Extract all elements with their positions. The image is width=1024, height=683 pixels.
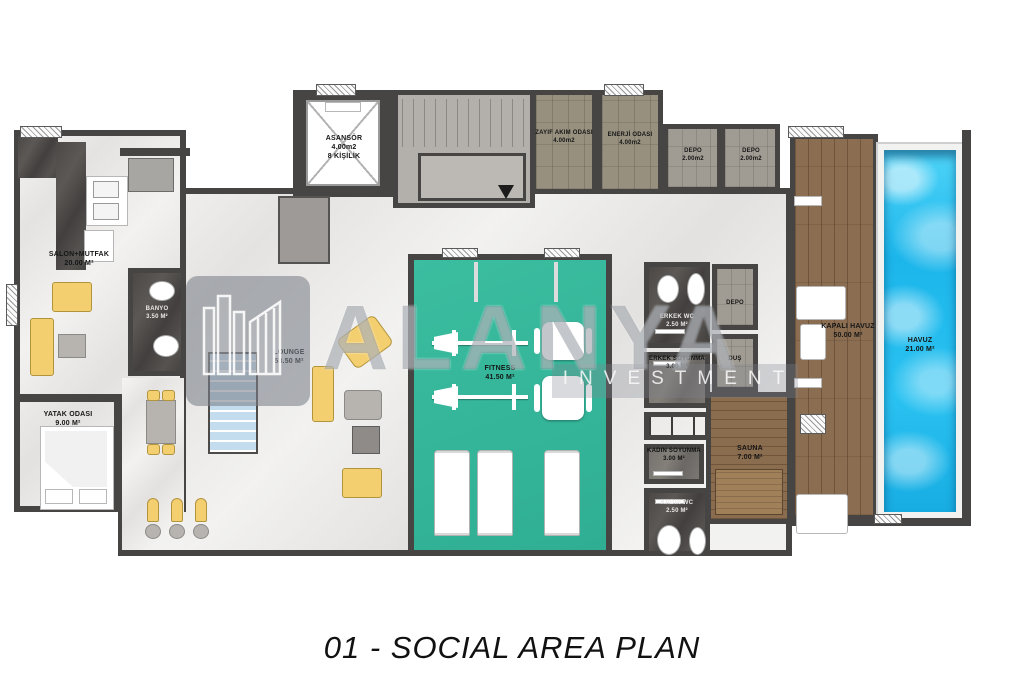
room-area: 2.50 M² [644,508,710,516]
label-havuz: HAVUZ 21.00 M² [882,336,958,354]
dining-table [146,400,176,444]
label-kapali-havuz: KAPALI HAVUZ 50.00 M² [818,322,878,340]
plan-title: 01 - SOCIAL AREA PLAN [0,630,1024,666]
coffee-table [58,334,86,358]
stair-steps [402,99,526,147]
room-name: BANYO [130,306,184,314]
column-hatch [604,84,644,96]
deck-bench [794,196,822,206]
column-hatch [20,126,62,138]
room-area: 4.00m2 [599,140,661,148]
room-name: DEPO [665,148,721,156]
room-area: 2.00m2 [723,156,779,164]
room-area: 50.00 M² [818,331,878,340]
dining-chair [147,444,160,455]
kitchen-wall-block [18,136,58,178]
label-depo-1: DEPO 2.00m2 [665,148,721,164]
deck-mat [800,414,826,434]
alanya-logo [186,276,310,406]
apartment-step-wall [120,148,190,156]
room-capacity: 8 KİŞİLİK [306,152,382,161]
room-name: KADIN SOYUNMA [644,448,704,456]
dining-chair [147,390,160,401]
watermark-sub: INVESTMENT [560,368,798,390]
room-name: ZAYIF AKIM ODASI [533,130,595,138]
label-kadin-soyunma: KADIN SOYUNMA 3.00 M² [644,448,704,464]
room-area: 3.50 M² [130,314,184,322]
label-salon-mutfak: SALON+MUTFAK 20.00 M² [34,250,124,268]
room-name: SAUNA [712,444,788,453]
label-kadin-wc: KADIN WC 2.50 M² [644,500,710,516]
outdoor-pool-water [884,150,956,512]
toilet-icon [689,527,706,555]
room-banyo [128,268,186,376]
room-area: 20.00 M² [34,259,124,268]
floor-plan-page: SALON+MUTFAK 20.00 M² BANYO 3.50 M² YATA… [0,0,1024,683]
label-yatak-odasi: YATAK ODASI 9.00 M² [28,410,108,428]
pillow [79,489,107,504]
room-name: YATAK ODASI [28,410,108,419]
sink-icon [93,203,119,220]
bedroom-divider-wall [14,394,120,402]
room-name: ASANSÖR [306,134,382,143]
toilet-icon [153,335,179,357]
room-name: KADIN WC [644,500,710,508]
sofa [52,282,92,312]
sink-icon [93,181,119,198]
room-name: ENERJİ ODASI [599,132,661,140]
bed-blanket [45,431,107,487]
column-hatch [788,126,844,138]
dining-chair [162,444,175,455]
room-name: SALON+MUTFAK [34,250,124,259]
room-area: 21.00 M² [882,345,958,354]
outer-wall-right [962,130,971,522]
pedicure-chair [144,498,162,540]
room-area: 4.00m2 [306,143,382,152]
toilet-icon [657,525,681,555]
kitchen-counter [86,176,128,226]
bedroom-right-wall [114,394,122,512]
column-hatch [316,84,356,96]
room-area: 4.00m2 [533,138,595,146]
locker-row [644,412,710,440]
room-name: DEPO [723,148,779,156]
label-banyo: BANYO 3.50 M² [130,306,184,322]
room-kadin-wc [644,488,710,556]
pillow [45,489,73,504]
room-area: 3.00 M² [644,456,704,464]
room-area: 7.00 M² [712,453,788,462]
room-name: HAVUZ [882,336,958,345]
room-area: 2.00m2 [665,156,721,164]
side-table [352,426,380,454]
column-hatch [6,284,18,326]
sink-icon [149,281,175,301]
column-hatch [874,514,902,524]
pedicure-chair [192,498,210,540]
sauna-bench [715,469,783,515]
pedicure-chair [168,498,186,540]
recliner [344,390,382,420]
label-asansor: ASANSÖR 4.00m2 8 KİŞİLİK [306,134,382,161]
stair-direction-arrow-icon [498,185,514,199]
bed [40,426,114,510]
sun-lounger [434,450,470,536]
sun-lounger [477,450,513,536]
wardrobe [128,158,174,192]
staircase [393,90,535,208]
sofa [30,318,54,376]
storage-block [278,196,330,264]
label-depo-2: DEPO 2.00m2 [723,148,779,164]
elevator-counterweight [325,102,361,112]
room-area: 9.00 M² [28,419,108,428]
room-name: KAPALI HAVUZ [818,322,878,331]
building-skyline-icon [186,276,310,406]
sofa [342,468,382,498]
label-sauna: SAUNA 7.00 M² [712,444,788,462]
label-zayif-akim: ZAYIF AKIM ODASI 4.00m2 [533,130,595,146]
column-hatch [544,248,580,258]
bench [653,471,683,476]
sun-lounger [796,494,848,534]
sun-lounger [544,450,580,536]
label-enerji: ENERJİ ODASI 4.00m2 [599,132,661,148]
column-hatch [442,248,478,258]
dining-chair [162,390,175,401]
